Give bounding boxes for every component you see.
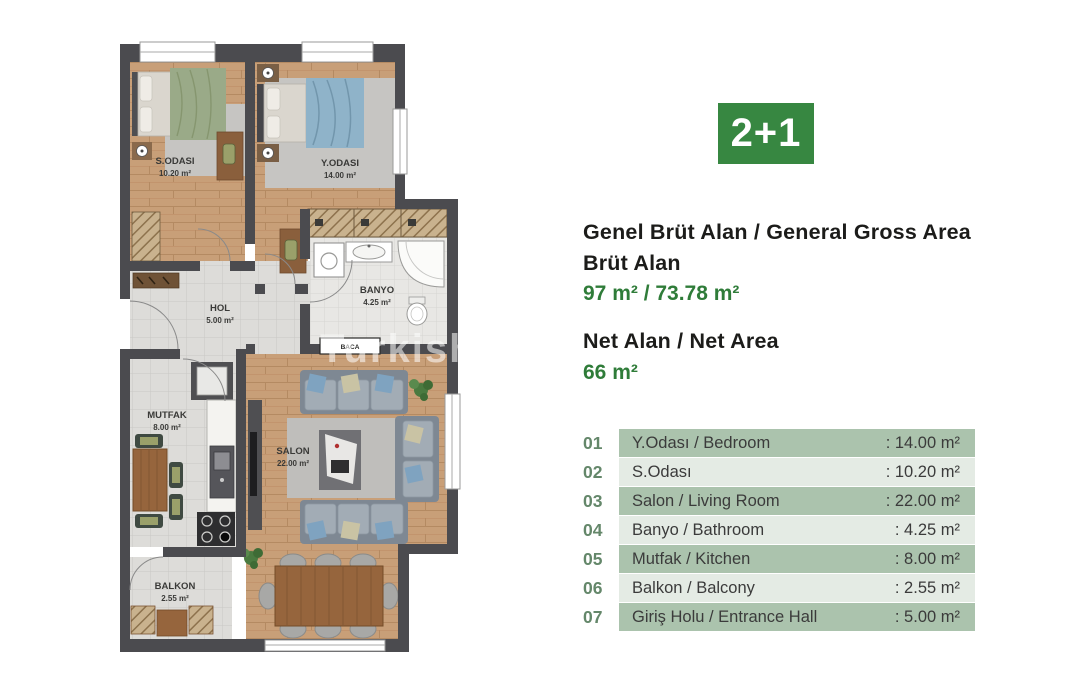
row-value: : 10.20 m² [886,463,960,482]
floor-plan-drawing: BACA S.ODASI 10.20 m² Y.ODASI 14.00 m² B… [115,14,463,662]
flyer-canvas: BACA S.ODASI 10.20 m² Y.ODASI 14.00 m² B… [0,0,1080,697]
row-label: Salon / Living Room [632,492,780,511]
area-mutfak: 8.00 m² [153,423,181,432]
row-number: 07 [583,603,613,632]
row-value: : 22.00 m² [886,492,960,511]
row-value: : 2.55 m² [895,579,960,598]
table-row: 07 Giriş Holu / Entrance Hall: 5.00 m² [583,603,975,632]
area-hol: 5.00 m² [206,316,234,325]
table-row: 01 Y.Odası / Bedroom: 14.00 m² [583,429,975,458]
label-hol: HOL [210,303,230,314]
table-row: 04 Banyo / Bathroom: 4.25 m² [583,516,975,545]
row-number: 02 [583,458,613,487]
label-banyo: BANYO [360,285,394,296]
area-y-odasi: 14.00 m² [324,171,356,180]
row-label: Balkon / Balcony [632,579,755,598]
label-balkon: BALKON [155,581,196,592]
floor-plan: BACA S.ODASI 10.20 m² Y.ODASI 14.00 m² B… [115,14,463,662]
row-number: 05 [583,545,613,574]
balcony-furniture [131,606,213,636]
row-number: 04 [583,516,613,545]
room-table: 01 Y.Odası / Bedroom: 14.00 m² 02 S.Odas… [583,429,975,632]
gross-area-value: 97 m² / 73.78 m² [583,282,739,306]
area-s-odasi: 10.20 m² [159,169,191,178]
label-y-odasi: Y.ODASI [321,158,359,169]
net-area-value: 66 m² [583,361,638,385]
row-value: : 8.00 m² [895,550,960,569]
row-number: 03 [583,487,613,516]
area-salon: 22.00 m² [277,459,309,468]
table-row: 06 Balkon / Balcony: 2.55 m² [583,574,975,603]
gross-area-title: Genel Brüt Alan / General Gross Area [583,220,971,245]
label-s-odasi: S.ODASI [155,156,194,167]
row-label: Giriş Holu / Entrance Hall [632,608,817,627]
row-value: : 4.25 m² [895,521,960,540]
net-area-title: Net Alan / Net Area [583,329,779,354]
table-row: 03 Salon / Living Room: 22.00 m² [583,487,975,516]
row-label: Mutfak / Kitchen [632,550,750,569]
table-row: 05 Mutfak / Kitchen: 8.00 m² [583,545,975,574]
row-number: 01 [583,429,613,458]
label-salon: SALON [276,446,309,457]
label-mutfak: MUTFAK [147,410,187,421]
gross-area-subtitle: Brüt Alan [583,251,681,276]
table-row: 02 S.Odası: 10.20 m² [583,458,975,487]
watermark-text: Turkish [320,327,463,371]
row-label: S.Odası [632,463,692,482]
row-label: Banyo / Bathroom [632,521,764,540]
row-label: Y.Odası / Bedroom [632,434,770,453]
entrance-shoe-cabinet [133,273,179,288]
area-balkon: 2.55 m² [161,594,189,603]
unit-type-badge: 2+1 [718,103,814,164]
row-value: : 5.00 m² [895,608,960,627]
row-number: 06 [583,574,613,603]
area-banyo: 4.25 m² [363,298,391,307]
row-value: : 14.00 m² [886,434,960,453]
